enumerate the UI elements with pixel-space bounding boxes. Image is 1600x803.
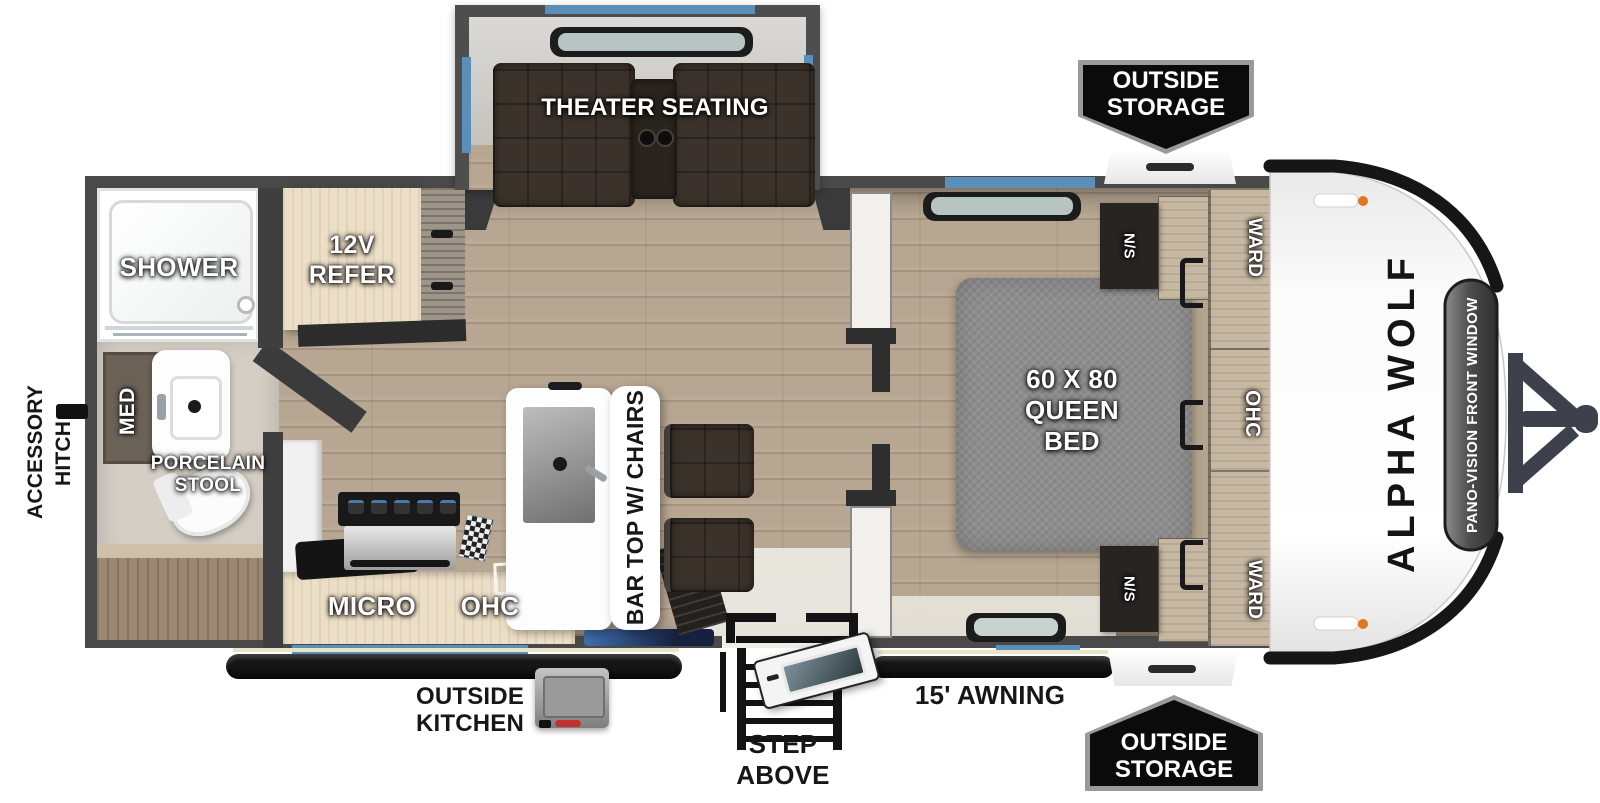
label-med: MED [112, 368, 144, 454]
label-porcelain-stool: PORCELAIN STOOL [146, 452, 270, 498]
brand-model-text: ALPHA WOLF [1381, 251, 1423, 573]
storage-door-bottom [1108, 650, 1238, 686]
stove-burner-icon [440, 500, 456, 514]
cupholder-icon [656, 129, 674, 147]
window-bedroom-top [923, 192, 1081, 221]
outside-kitchen-knob-icon [555, 720, 581, 727]
storage-door-handle-icon [1146, 163, 1194, 171]
slideout-accent-left [462, 57, 471, 153]
window-accent-bedroom-top [945, 177, 1095, 188]
storage-badge-top: OUTSIDE STORAGE [1078, 60, 1254, 154]
label-ns-top: N/S [1100, 203, 1158, 289]
label-theater-seating: THEATER SEATING [525, 91, 785, 125]
label-step-above: STEP ABOVE [703, 744, 863, 776]
sink-faucet-icon [157, 394, 166, 420]
bath-sink [152, 350, 230, 460]
door-bracket [726, 613, 735, 643]
window-bedroom-bottom [966, 613, 1066, 642]
slideout-window-glass [558, 33, 745, 51]
awning-light-strip-left [233, 648, 679, 652]
label-outside-kitchen: OUTSIDE KITCHEN [404, 682, 536, 738]
step-rung [737, 718, 842, 724]
nightstand-bottom: N/S [1100, 546, 1158, 632]
entry-window [584, 629, 714, 646]
label-awning: 15' AWNING [908, 680, 1072, 710]
label-accessory-line1: ACCESSORY [22, 384, 50, 520]
bar-chair [664, 424, 754, 498]
theater-seat-left [493, 63, 635, 207]
entry-door-handle-icon [766, 674, 779, 682]
slideout-accent-top [545, 5, 755, 14]
front-cap-group: PANO-VISION FRONT WINDOW ALPHA WOLF [1262, 158, 1600, 670]
label-queen-bed: 60 X 80 QUEEN BED [1000, 362, 1144, 458]
shower-drain-icon [237, 296, 255, 314]
partition-bottom-edge [872, 444, 890, 492]
label-shower: SHOWER [104, 250, 254, 284]
marker-light-icon [1358, 619, 1368, 629]
bath-bench-top [97, 544, 263, 558]
bed-handle-icon [1180, 258, 1203, 308]
floorplan-canvas: THEATER SEATING SHOWER MED PORCELAIN STO… [0, 0, 1600, 803]
step-rail-post [720, 652, 726, 712]
label-ohc-kitchen: OHC [440, 590, 540, 622]
outside-kitchen-panel [543, 676, 605, 718]
stove-burner-icon [371, 500, 387, 514]
label-micro: MICRO [320, 590, 424, 622]
stove-burner-icon [348, 500, 364, 514]
stove-burner-icon [417, 500, 433, 514]
bed-handle-icon [1180, 400, 1203, 450]
bar-chair [664, 518, 754, 592]
stove-body [344, 526, 456, 570]
theater-seat-right [673, 63, 815, 207]
bar-handle-icon [548, 382, 582, 390]
hitch-coupler [1574, 405, 1598, 433]
refer-vent-panel [421, 190, 465, 322]
window-bedroom-bottom-glass [974, 618, 1058, 636]
hitch-frame [1508, 353, 1598, 493]
storage-badge-bottom: OUTSIDE STORAGE [1085, 695, 1263, 791]
label-refer: 12V REFER [296, 228, 408, 292]
cap-rail-top [1314, 194, 1358, 207]
awning-light-strip-right [878, 650, 1108, 654]
marker-light-icon [1358, 196, 1368, 206]
partition-bottom-cap [846, 490, 896, 506]
theater-slideout: THEATER SEATING [455, 5, 820, 190]
outside-kitchen-unit [535, 668, 609, 728]
refer-handle-icon [431, 230, 453, 238]
partition-top-edge [872, 342, 890, 392]
hitch-tongue [1520, 411, 1580, 427]
cap-rail-bottom [1314, 617, 1358, 630]
awning-bar-right [872, 656, 1114, 678]
label-accessory-line2: HITCH [50, 408, 78, 498]
wall-top-left [85, 176, 465, 188]
label-ns-bottom: N/S [1100, 546, 1158, 632]
label-outside-storage-top: OUTSIDE STORAGE [1078, 66, 1254, 122]
storage-door-handle-icon [1148, 665, 1196, 673]
storage-door-top [1104, 150, 1236, 184]
refer-handle-icon [431, 282, 453, 290]
shower-glass-rail [113, 333, 247, 336]
stove-burner-icon [394, 500, 410, 514]
nightstand-top: N/S [1100, 203, 1158, 289]
label-outside-storage-bottom: OUTSIDE STORAGE [1085, 727, 1263, 785]
bar-label-strip: BAR TOP W/ CHAIRS [610, 386, 660, 630]
slideout-window [550, 27, 753, 57]
partition-top [850, 192, 892, 330]
awning-bar-left [226, 654, 682, 679]
pano-vision-text: PANO-VISION FRONT WINDOW [1464, 297, 1481, 533]
entry-door-window [780, 644, 867, 696]
cupholder-icon [638, 129, 656, 147]
label-bar-top: BAR TOP W/ CHAIRS [622, 390, 649, 625]
shower-glass-door [105, 326, 253, 330]
bed-handle-icon [1180, 540, 1203, 590]
wall-shower [258, 188, 283, 348]
bar-sink-drain-icon [553, 457, 567, 471]
outside-kitchen-foot [539, 720, 551, 728]
stove-handle-icon [350, 560, 450, 567]
sink-drain-icon [188, 400, 201, 413]
window-bedroom-top-glass [931, 197, 1073, 215]
stove-cooktop [338, 492, 460, 526]
bath-bench [97, 558, 263, 640]
